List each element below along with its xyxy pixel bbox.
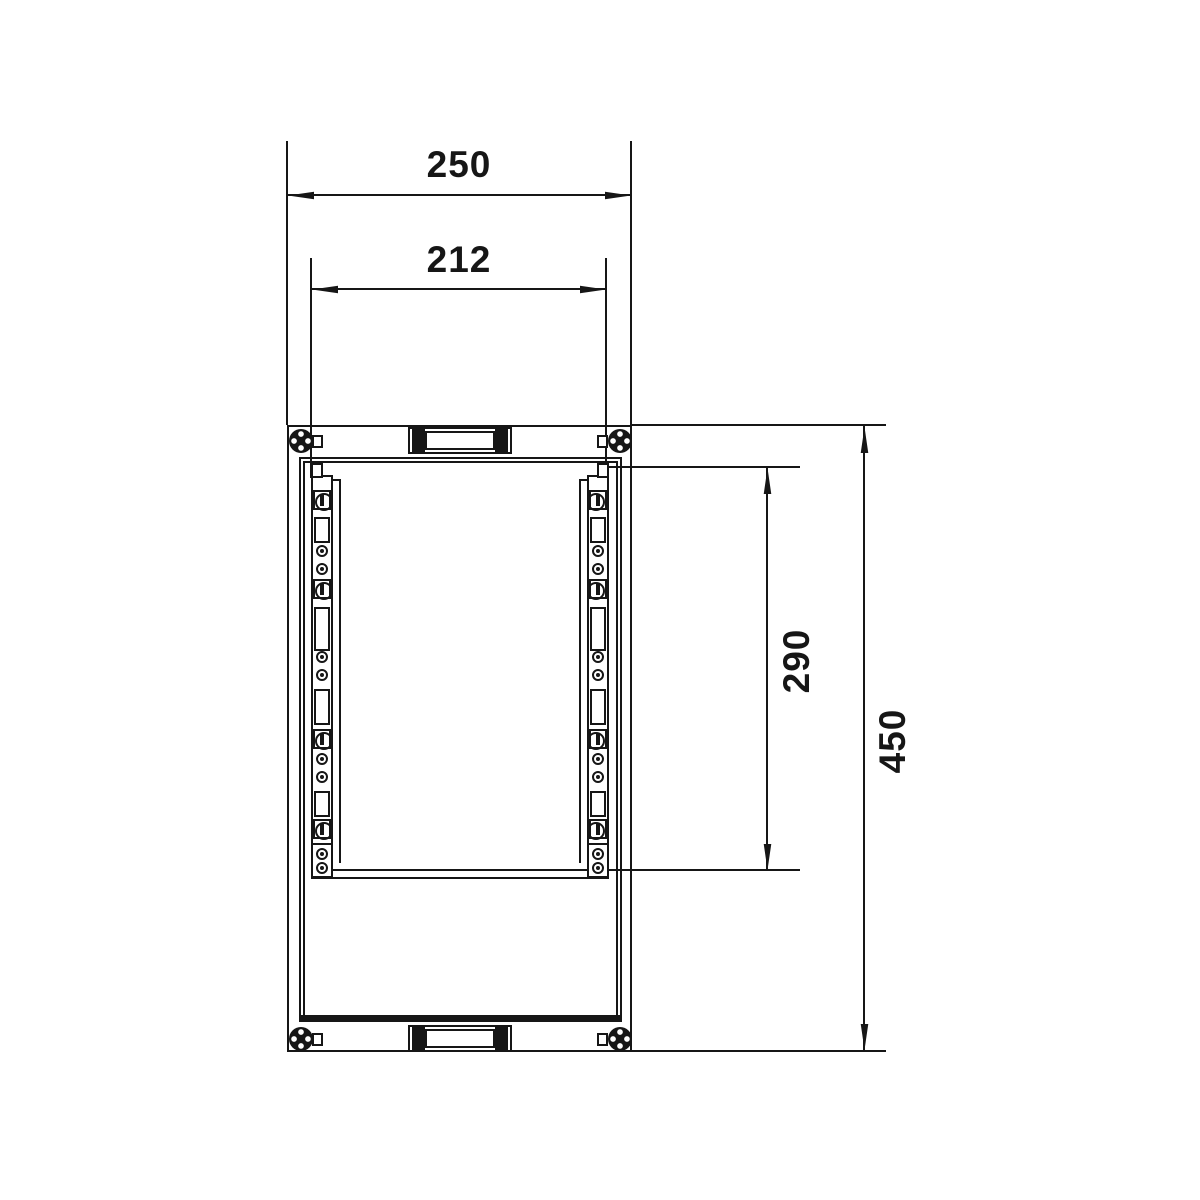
hole-center-dot [320,775,324,779]
handle-grip [425,431,495,450]
hole-icon [592,545,604,557]
slot-cutout [590,689,606,725]
fastener-tab [597,1033,608,1046]
screw-slot [596,583,600,595]
hole-icon [592,848,604,860]
hole-icon [592,651,604,663]
corner-screw-icon [608,429,632,453]
arrowhead-left-icon [312,285,338,294]
bottom-handle [408,1025,512,1053]
dimension-line-outer-width [287,194,632,196]
rail-bracket-line [333,479,341,481]
rail-bracket-line [579,479,581,863]
extension-line [632,424,886,426]
panel-bottom-thick-edge [301,1015,620,1021]
hole-icon [316,848,328,860]
technical-drawing-canvas: 250 212 450 290 [0,0,1200,1200]
hole-icon [316,545,328,557]
hole-center-dot [596,757,600,761]
hole-icon [316,771,328,783]
arrowhead-right-icon [605,191,631,200]
hole-icon [316,669,328,681]
extension-line [286,141,288,425]
mounting-rail-left [311,463,345,878]
handle-end-bar [412,428,425,453]
hole-center-dot [596,567,600,571]
hole-center-dot [320,852,324,856]
hole-center-dot [596,549,600,553]
slot-cutout [314,607,330,651]
arrowhead-up-icon [763,468,772,494]
rail-top-hook [597,463,609,478]
mounting-rail-right [575,463,609,878]
slot-cutout [314,791,330,817]
slotted-screw-icon [313,729,331,749]
frame-inner-panel [299,457,622,1022]
screw-slot [320,494,324,506]
dimension-label-outer-height: 450 [874,671,912,811]
arrowhead-right-icon [580,285,606,294]
frame-inner-panel-line [303,461,618,1018]
slotted-screw-icon [313,819,331,839]
hole-center-dot [320,567,324,571]
hole-center-dot [320,866,324,870]
hole-icon [316,862,328,874]
hole-center-dot [320,655,324,659]
screw-slot [596,823,600,835]
hole-icon [592,753,604,765]
dimension-label-outer-width: 250 [389,146,529,184]
slot-cutout [590,791,606,817]
hole-center-dot [320,549,324,553]
hole-center-dot [596,655,600,659]
arrowhead-up-icon [860,427,869,453]
fastener-tab [597,435,608,448]
rail-foot-divider [313,843,331,845]
arrowhead-down-icon [860,1024,869,1050]
dimension-line-inner-width [311,288,607,290]
fastener-tab [312,435,323,448]
extension-line [632,1050,886,1052]
screw-slot [320,583,324,595]
slot-cutout [590,607,606,651]
rail-top-hook [311,463,323,478]
rail-bracket-line [339,479,341,863]
slotted-screw-icon [313,490,331,510]
screw-slot [320,823,324,835]
rail-bracket-line [579,479,587,481]
hole-center-dot [596,775,600,779]
rail-foot-divider [589,843,607,845]
arrowhead-down-icon [763,844,772,870]
slotted-screw-icon [589,490,607,510]
extension-line [630,141,632,425]
rail-bottom-line [311,877,609,879]
hole-icon [592,563,604,575]
corner-screw-icon [608,1027,632,1051]
slotted-screw-icon [589,729,607,749]
hole-icon [592,771,604,783]
hole-icon [316,651,328,663]
slotted-screw-icon [589,579,607,599]
hole-center-dot [320,757,324,761]
dimension-line-inner-height [766,467,768,871]
dimension-line-outer-height [863,425,865,1052]
screw-slot [596,733,600,745]
dimension-label-inner-height: 290 [778,591,816,731]
top-handle [408,427,512,455]
slotted-screw-icon [589,819,607,839]
corner-screw-icon [289,1027,313,1051]
dimension-label-inner-width: 212 [389,241,529,279]
screw-slot [596,494,600,506]
rail-bottom-line-and-extension [311,869,800,871]
extension-line [597,466,800,468]
hole-icon [316,753,328,765]
corner-screw-icon [289,429,313,453]
handle-grip [425,1029,495,1048]
hole-icon [592,669,604,681]
slot-cutout [590,517,606,543]
hole-center-dot [320,673,324,677]
slot-cutout [314,689,330,725]
hole-icon [592,862,604,874]
slot-cutout [314,517,330,543]
handle-end-bar [495,428,508,453]
hole-center-dot [596,866,600,870]
screw-slot [320,733,324,745]
arrowhead-left-icon [288,191,314,200]
hole-center-dot [596,673,600,677]
slotted-screw-icon [313,579,331,599]
handle-end-bar [412,1026,425,1051]
hole-center-dot [596,852,600,856]
handle-end-bar [495,1026,508,1051]
fastener-tab [312,1033,323,1046]
hole-icon [316,563,328,575]
